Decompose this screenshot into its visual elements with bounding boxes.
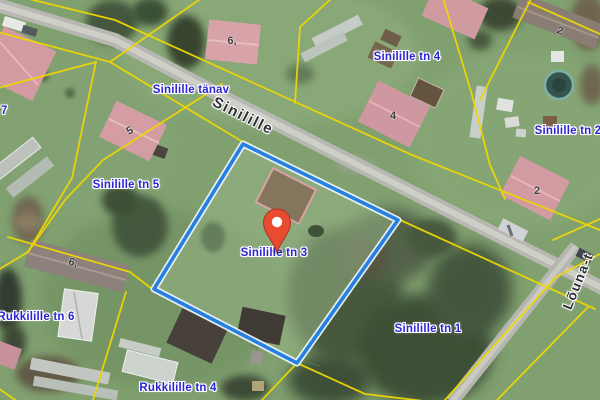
address-label-rukkilille-tn-6: Rukkilille tn 6 [0, 311, 75, 323]
location-marker-pin[interactable] [260, 206, 294, 259]
building-number-4: 4 [390, 110, 396, 122]
address-label-parcel-7: 7 [1, 105, 8, 117]
map-canvas[interactable]: Sinilille tänav Sinilille Lõuna-t Sinili… [0, 0, 600, 400]
building-number-2-right: 2 [534, 185, 540, 197]
address-label-sinilille-tn-1: Sinilille tn 1 [395, 323, 462, 335]
address-label-sinilille-tn-4: Sinilille tn 4 [374, 51, 441, 63]
marker-hole [272, 217, 282, 227]
marker-shadow [272, 248, 286, 253]
address-label-sinilille-tn-5: Sinilille tn 5 [93, 179, 160, 191]
marker-body [264, 209, 291, 252]
aerial-imagery [0, 0, 600, 400]
building-number-6-top: 6, [227, 35, 236, 47]
address-label-rukkilille-tn-4: Rukkilille tn 4 [139, 382, 216, 394]
address-label-sinilille-tn-2: Sinilille tn 2 [535, 125, 600, 137]
